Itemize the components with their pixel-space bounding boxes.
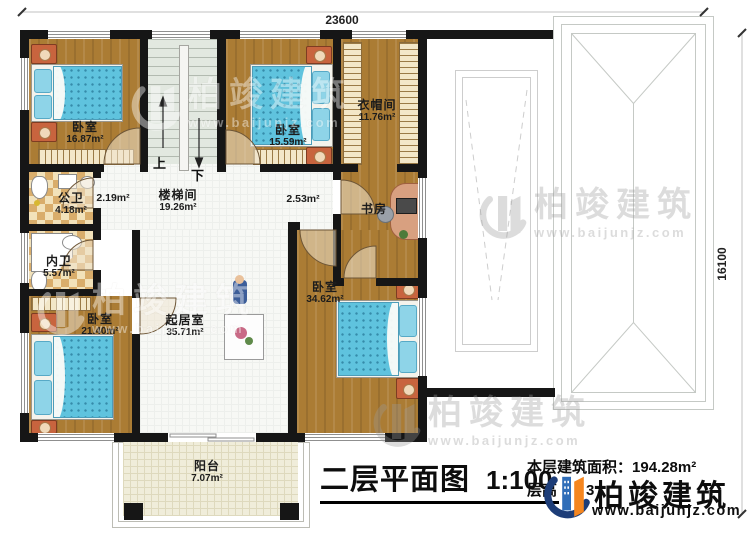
nightstand-icon xyxy=(306,147,332,165)
nightstand-icon xyxy=(396,278,420,299)
watermark: 柏竣建筑www.baijunjz.com xyxy=(478,188,698,244)
pillow-icon xyxy=(34,380,52,415)
pillow-icon xyxy=(312,71,330,104)
quilt-icon xyxy=(53,336,113,418)
stair-stringer xyxy=(179,45,189,171)
room-label-stairwell: 楼梯间19.26m² xyxy=(138,189,218,214)
bedroom3-wardrobe xyxy=(31,297,91,311)
person-icon xyxy=(233,280,247,304)
pillow-icon xyxy=(399,305,417,337)
coffee-table-icon xyxy=(224,314,264,360)
room-label-bedroom2: 卧室15.59m² xyxy=(248,124,328,149)
bed-icon xyxy=(336,300,420,378)
dimension-width: 23600 xyxy=(310,13,374,27)
room-label-balcony: 阳台7.07m² xyxy=(167,460,247,485)
drawing-title-text: 二层平面图 xyxy=(320,456,470,498)
roof-outline xyxy=(554,17,714,410)
person-head-icon xyxy=(235,275,244,284)
sink-icon xyxy=(62,235,82,250)
pillow-icon xyxy=(399,341,417,373)
hall-area-right: 2.53m² xyxy=(271,193,335,205)
sink-icon xyxy=(58,174,77,189)
nightstand-icon xyxy=(31,420,57,434)
stair-down-label: 下 xyxy=(191,165,204,184)
room-label-living-room: 起居室35.71m² xyxy=(145,314,225,339)
drawing-title: 二层平面图 1:100 xyxy=(320,456,559,504)
nightstand-icon xyxy=(396,378,420,399)
nightstand-icon xyxy=(31,313,57,332)
dimension-height: 16100 xyxy=(715,234,729,294)
brand-logo-icon xyxy=(543,468,591,524)
room-label-study: 书房 xyxy=(344,203,404,216)
room-label-private-bath: 内卫5.57m² xyxy=(24,255,94,280)
bed-icon xyxy=(31,64,123,122)
quilt-icon xyxy=(53,66,122,120)
balcony-post-left xyxy=(124,503,143,520)
lower-roof-outline xyxy=(456,71,538,352)
room-label-bedroom4: 卧室34.62m² xyxy=(285,281,365,306)
pillow-icon xyxy=(34,341,52,376)
sink-icon xyxy=(80,176,95,189)
stair-up-label: 上 xyxy=(153,153,166,172)
bed-icon xyxy=(31,334,114,420)
nightstand-icon xyxy=(306,46,332,64)
hall-area-left: 2.19m² xyxy=(81,192,145,204)
plant-icon xyxy=(399,230,408,239)
floor-plan-canvas: 卧室16.87m² 楼梯间19.26m² 卧室15.59m² 衣帽间11.76m… xyxy=(0,0,750,534)
floor-height-digit: 3 xyxy=(586,482,594,499)
watermark-logo-icon xyxy=(478,188,528,244)
room-label-cloakroom: 衣帽间11.76m² xyxy=(337,99,417,124)
leaf-icon xyxy=(245,337,253,345)
pillow-icon xyxy=(34,69,52,93)
quilt-icon xyxy=(338,302,399,376)
balcony-post-right xyxy=(280,503,299,520)
pillow-icon xyxy=(34,95,52,119)
bedroom1-wardrobe xyxy=(38,149,134,165)
nightstand-icon xyxy=(31,44,57,64)
room-label-bedroom1: 卧室16.87m² xyxy=(45,121,125,146)
brand-website: www.baijunjz.com xyxy=(592,503,741,519)
room-label-bedroom3: 卧室21.40m² xyxy=(60,313,140,338)
